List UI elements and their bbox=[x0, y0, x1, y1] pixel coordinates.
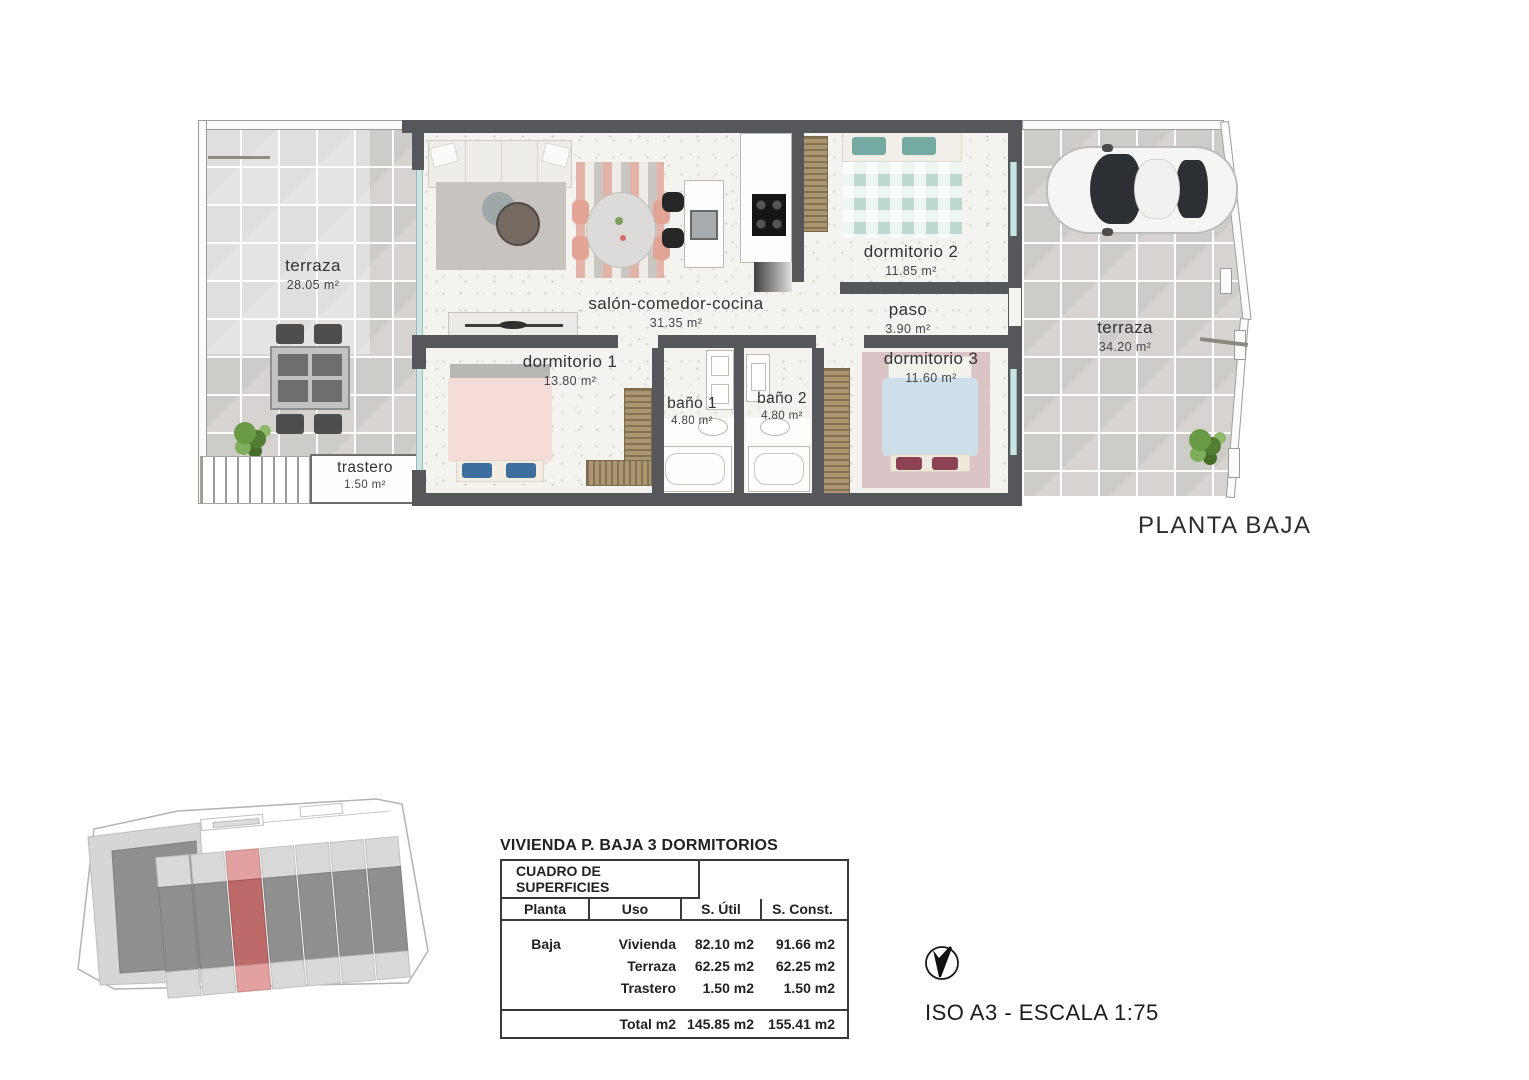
cell: 62.25 m2 bbox=[682, 955, 762, 977]
scale-note: ISO A3 - ESCALA 1:75 bbox=[925, 1000, 1159, 1026]
page: terraza 28.05 m² salón-comedor-cocina 31… bbox=[0, 0, 1529, 1080]
window bbox=[416, 369, 423, 470]
terrace-chair bbox=[314, 324, 342, 344]
cell: 82.10 m2 bbox=[682, 933, 762, 955]
bath2-tub bbox=[748, 446, 810, 492]
col-util: S. Útil bbox=[682, 899, 762, 919]
total-const: 155.41 m2 bbox=[762, 1011, 843, 1037]
floorplan: terraza 28.05 m² salón-comedor-cocina 31… bbox=[200, 118, 1246, 510]
cell: 91.66 m2 bbox=[762, 933, 843, 955]
label-paso: paso 3.90 m² bbox=[848, 300, 968, 336]
total-util: 145.85 m2 bbox=[682, 1011, 762, 1037]
wardrobe bbox=[822, 368, 850, 494]
plant-icon bbox=[1185, 423, 1229, 469]
summary-title: VIVIENDA P. BAJA 3 DORMITORIOS bbox=[500, 837, 778, 855]
terrace-chair bbox=[276, 324, 304, 344]
wardrobe bbox=[586, 460, 652, 486]
cell bbox=[502, 977, 590, 999]
boundary-wall bbox=[1022, 120, 1224, 130]
cell: Baja bbox=[502, 933, 590, 955]
terrace-chair bbox=[276, 414, 304, 434]
wall bbox=[412, 120, 424, 170]
table-columns: Planta Uso S. Útil S. Const. bbox=[502, 899, 847, 921]
label-bano2: baño 2 4.80 m² bbox=[732, 390, 832, 423]
cooktop bbox=[752, 194, 786, 236]
bar-stool bbox=[662, 228, 684, 248]
wall bbox=[792, 120, 804, 282]
bar-stool bbox=[662, 192, 684, 212]
label-dormitorio2: dormitorio 2 11.85 m² bbox=[811, 242, 1011, 278]
table-body: Baja Vivienda 82.10 m2 91.66 m2 Terraza … bbox=[502, 921, 847, 1009]
wall bbox=[402, 120, 1020, 133]
label-bano1: baño 1 4.80 m² bbox=[642, 395, 742, 428]
wall bbox=[658, 335, 816, 348]
label-dormitorio3: dormitorio 3 11.60 m² bbox=[831, 349, 1031, 385]
label-terraza-left: terraza 28.05 m² bbox=[213, 256, 413, 292]
boundary-pillar bbox=[1220, 268, 1232, 294]
col-uso: Uso bbox=[590, 899, 682, 919]
col-planta: Planta bbox=[502, 899, 590, 919]
table-total-row: Total m2 145.85 m2 155.41 m2 bbox=[502, 1009, 847, 1037]
bed-dorm2 bbox=[842, 132, 962, 238]
window bbox=[416, 170, 423, 335]
dining-table bbox=[586, 192, 656, 268]
cell bbox=[502, 955, 590, 977]
table-header: CUADRO DE SUPERFICIES bbox=[502, 861, 700, 899]
stairs bbox=[200, 456, 310, 504]
boundary-wall bbox=[198, 120, 207, 504]
boundary-pillar bbox=[1228, 448, 1240, 478]
wardrobe bbox=[802, 136, 828, 232]
site-plan bbox=[60, 785, 455, 1015]
plan-title: PLANTA BAJA bbox=[1138, 512, 1311, 540]
oven bbox=[754, 262, 792, 292]
sofa bbox=[428, 140, 572, 188]
cell: 1.50 m2 bbox=[682, 977, 762, 999]
bath1-tub bbox=[658, 446, 732, 492]
coffee-table bbox=[496, 202, 540, 246]
terrace-chair bbox=[314, 414, 342, 434]
label-trastero: trastero 1.50 m² bbox=[315, 459, 415, 492]
label-terraza-right: terraza 34.20 m² bbox=[1025, 318, 1225, 354]
label-dormitorio1: dormitorio 1 13.80 m² bbox=[470, 352, 670, 388]
cell: 1.50 m2 bbox=[762, 977, 843, 999]
label-salon: salón-comedor-cocina 31.35 m² bbox=[556, 294, 796, 330]
car bbox=[1046, 146, 1238, 234]
wall bbox=[840, 282, 1008, 294]
site-units-row bbox=[156, 836, 410, 998]
north-arrow-icon bbox=[933, 946, 952, 977]
wall bbox=[422, 335, 618, 348]
terrace-shadow-overlay bbox=[202, 128, 370, 354]
col-const: S. Const. bbox=[762, 899, 843, 919]
cell: Terraza bbox=[590, 955, 682, 977]
compass bbox=[910, 915, 980, 995]
kitchen-sink bbox=[690, 210, 718, 240]
total-label: Total m2 bbox=[590, 1011, 682, 1037]
cell: Vivienda bbox=[590, 933, 682, 955]
cell: Trastero bbox=[590, 977, 682, 999]
summary-table: CUADRO DE SUPERFICIES Planta Uso S. Útil… bbox=[500, 859, 849, 1039]
cell: 62.25 m2 bbox=[762, 955, 843, 977]
wall bbox=[418, 493, 1022, 506]
entry-door-opening bbox=[1009, 288, 1021, 326]
wall bbox=[864, 335, 1008, 348]
window bbox=[1010, 162, 1017, 236]
boundary-wall bbox=[198, 120, 424, 130]
terrace-table bbox=[270, 346, 350, 410]
handrail-line bbox=[208, 156, 270, 159]
